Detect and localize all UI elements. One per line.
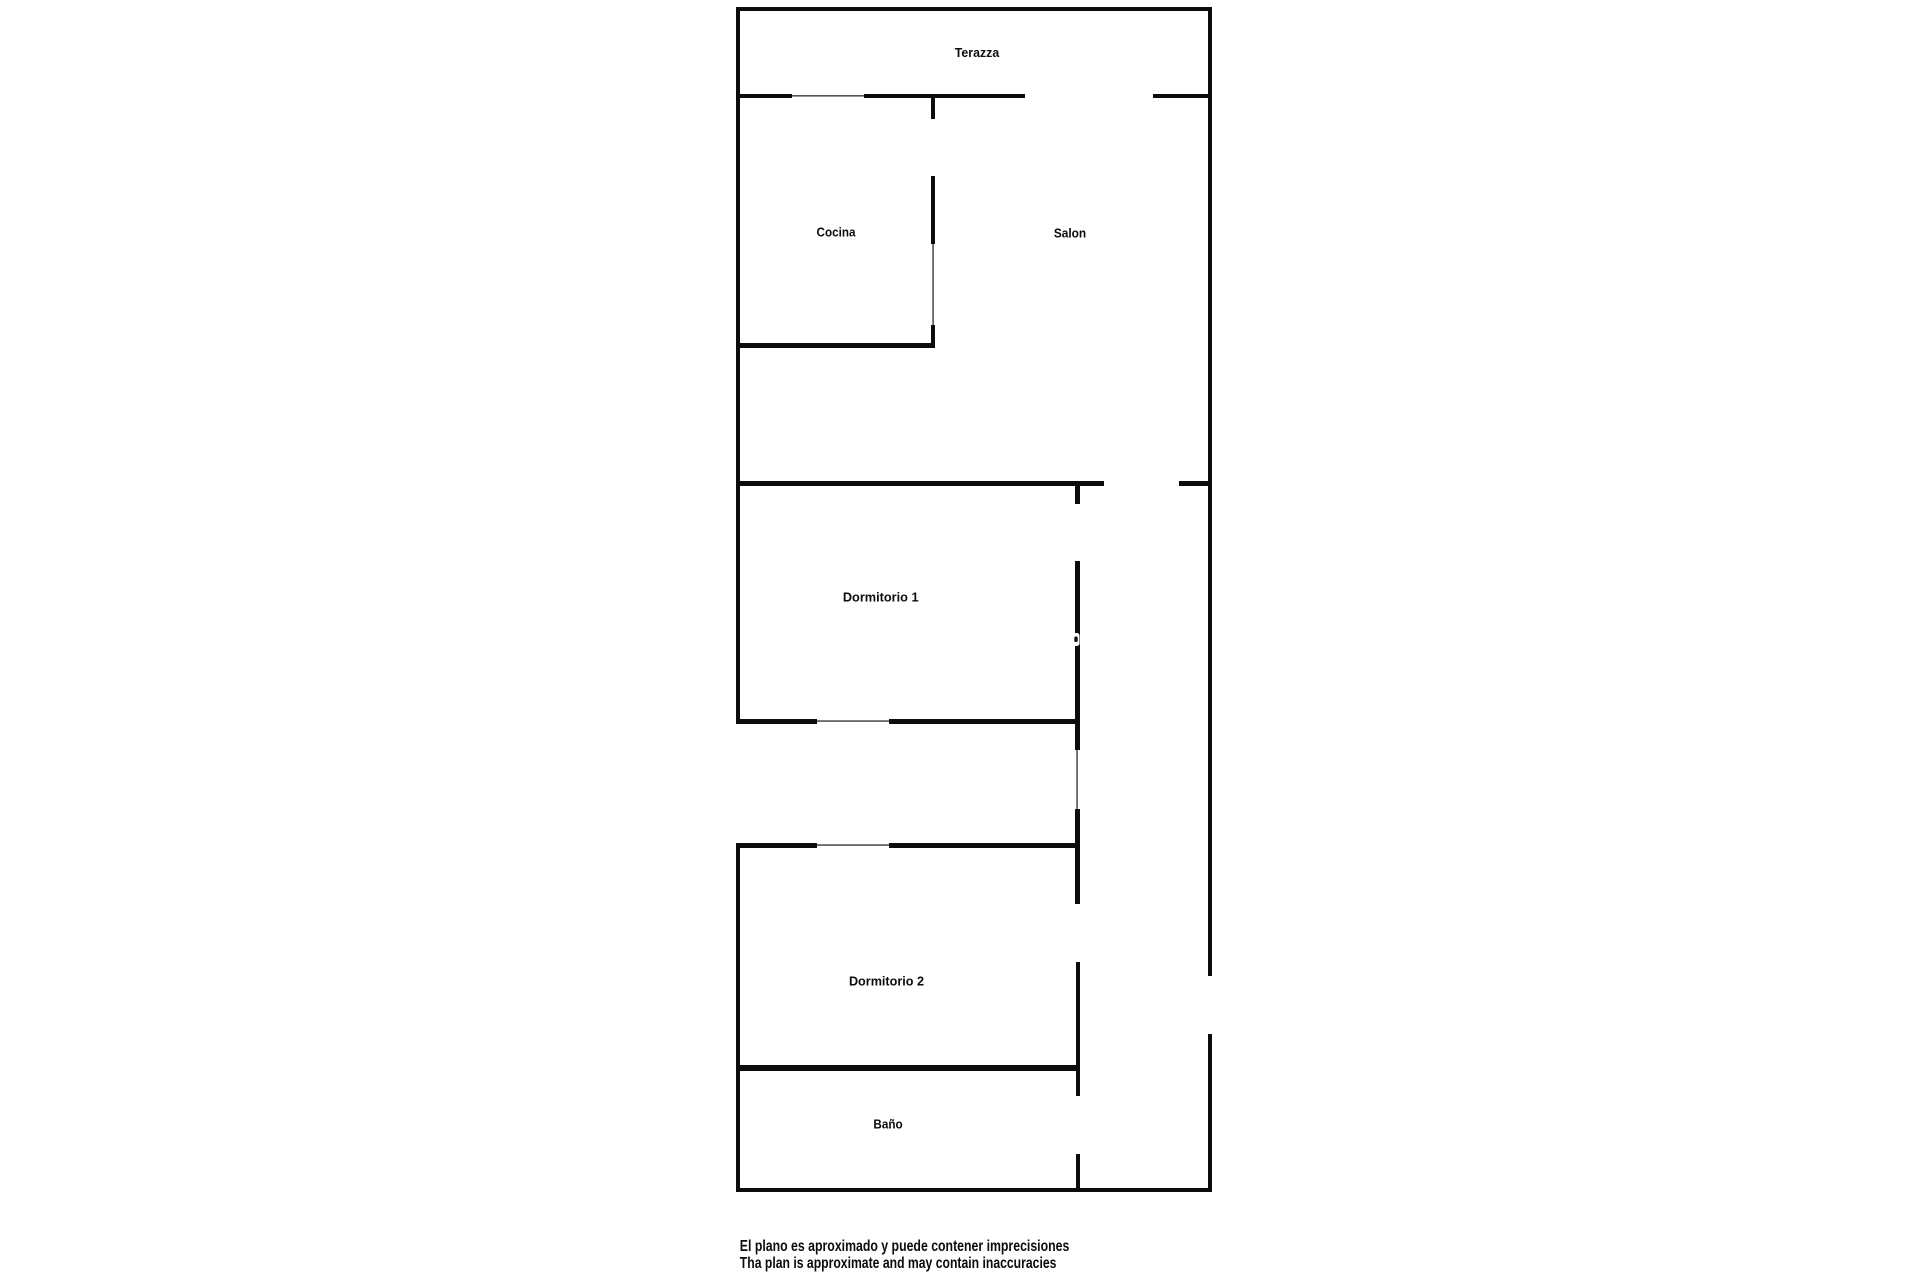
svg-text:Terazza: Terazza bbox=[955, 45, 1000, 60]
svg-text:Tha plan is approximate and ma: Tha plan is approximate and may contain … bbox=[740, 1255, 1057, 1272]
svg-text:Dormitorio 1: Dormitorio 1 bbox=[843, 590, 919, 605]
svg-text:El plano es aproximado y puede: El plano es aproximado y puede contener … bbox=[740, 1238, 1070, 1255]
svg-text:Dormitorio 2: Dormitorio 2 bbox=[849, 974, 924, 989]
svg-text:Salon: Salon bbox=[1054, 226, 1086, 241]
svg-text:Cocina: Cocina bbox=[817, 225, 857, 240]
svg-text:Baño: Baño bbox=[873, 1117, 902, 1132]
